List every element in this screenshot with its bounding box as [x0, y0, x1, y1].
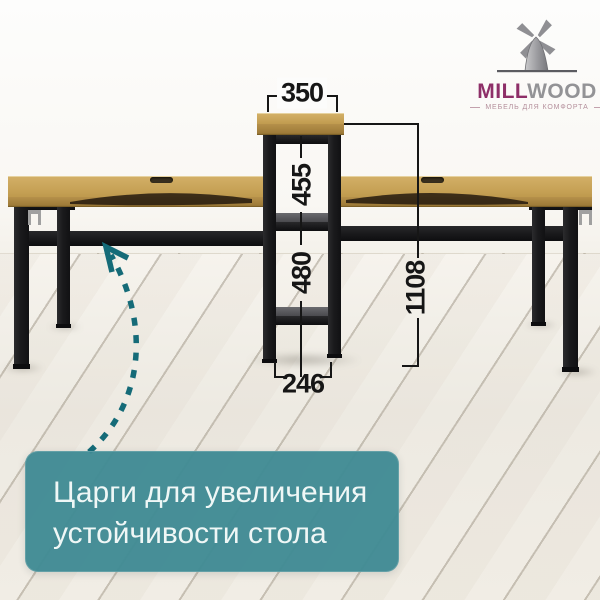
left-desktop-front-edge: [8, 197, 266, 207]
tower-wood-cap-edge: [257, 124, 344, 135]
left-side-hook: [28, 210, 41, 225]
windmill-icon: [470, 12, 600, 76]
right-side-hook: [579, 210, 592, 225]
right-back-leg: [532, 205, 545, 324]
tagline-left-dash: [470, 107, 480, 108]
right-desktop-front-edge: [338, 197, 592, 207]
left-grommet: [150, 177, 173, 183]
brand-tagline: МЕБЕЛЬ ДЛЯ КОМФОРТА: [470, 104, 600, 111]
brand-name-primary: MILL: [477, 80, 527, 103]
tower-right-foot: [327, 354, 342, 358]
callout-line-2: устойчивости стола: [53, 513, 385, 554]
brand-logo: MILLWOOD МЕБЕЛЬ ДЛЯ КОМФОРТА: [470, 12, 600, 111]
tower-left-foot: [262, 359, 277, 363]
left-back-leg: [57, 205, 70, 326]
right-desktop-surface: [338, 176, 592, 198]
dimension-upper-section: 455: [287, 164, 318, 206]
right-front-foot: [562, 367, 579, 372]
brand-name-secondary: WOOD: [527, 80, 597, 103]
left-back-foot: [56, 324, 71, 328]
tower-left-post: [263, 135, 276, 363]
dimension-top-width: 350: [277, 78, 327, 109]
dimension-total-height: 1108: [401, 261, 432, 316]
tower-right-post: [328, 135, 341, 358]
right-back-foot: [531, 322, 546, 326]
dimension-lower-section: 480: [287, 252, 318, 294]
right-grommet: [421, 177, 444, 183]
tagline-text: МЕБЕЛЬ ДЛЯ КОМФОРТА: [485, 104, 588, 111]
left-desktop-surface: [8, 176, 266, 198]
dimension-base-width: 246: [282, 369, 324, 400]
callout-banner: Царги для увеличения устойчивости стола: [25, 451, 399, 572]
callout-text: Царги для увеличения устойчивости стола: [25, 451, 399, 554]
right-front-leg: [563, 199, 578, 369]
left-front-foot: [13, 364, 30, 369]
callout-line-1: Царги для увеличения: [53, 472, 385, 513]
left-front-leg: [14, 199, 29, 366]
tagline-right-dash: [594, 107, 600, 108]
product-image: 350 455 480 246 1108 MILLWOOD МЕБЕЛЬ ДЛЯ…: [0, 0, 600, 600]
brand-name: MILLWOOD: [470, 82, 600, 102]
